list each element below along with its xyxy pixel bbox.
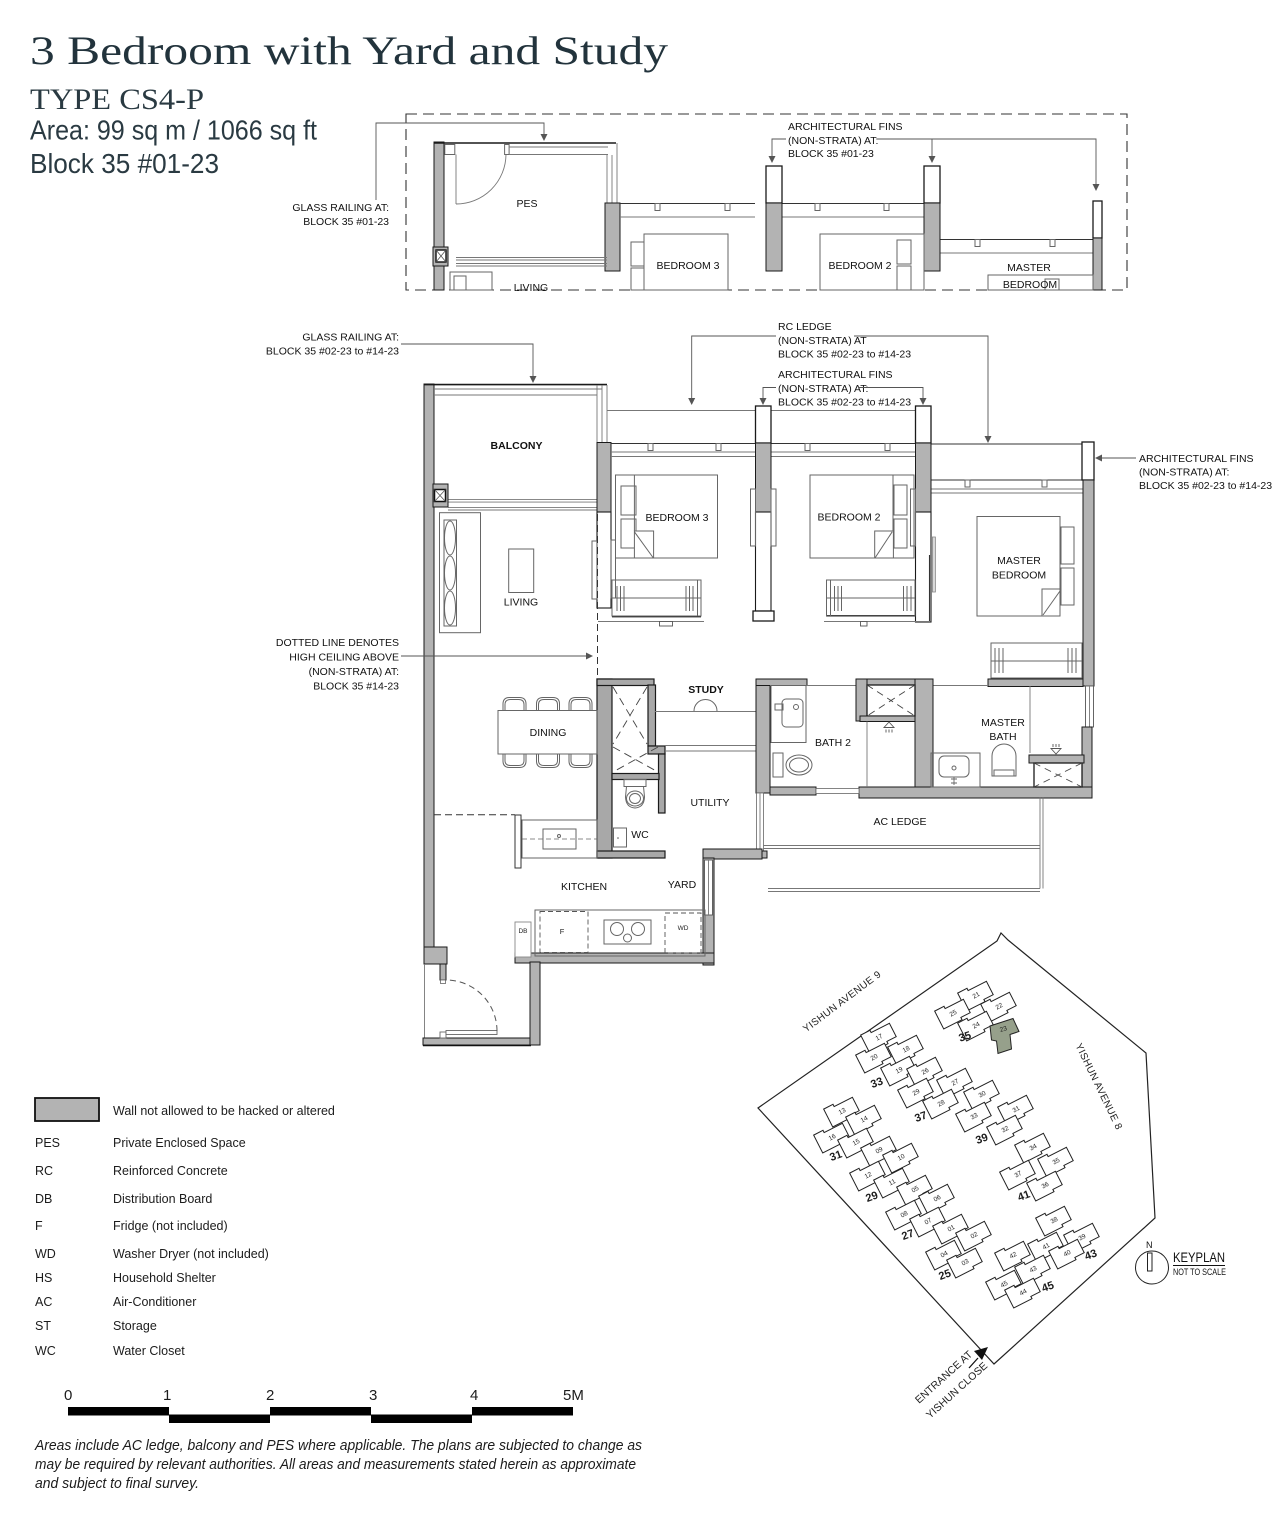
svg-text:BEDROOM 3: BEDROOM 3: [656, 260, 719, 272]
svg-text:DOTTED LINE DENOTES: DOTTED LINE DENOTES: [276, 637, 399, 649]
svg-text:Household Shelter: Household Shelter: [113, 1271, 216, 1285]
svg-text:DB: DB: [518, 928, 527, 935]
svg-text:STUDY: STUDY: [688, 684, 724, 696]
svg-text:Block 35 #01-23: Block 35 #01-23: [30, 148, 219, 179]
svg-text:UTILITY: UTILITY: [690, 797, 729, 809]
svg-text:NOT TO SCALE: NOT TO SCALE: [1173, 1267, 1226, 1277]
svg-text:WC: WC: [35, 1344, 56, 1358]
svg-text:27: 27: [900, 1227, 916, 1242]
svg-text:AC LEDGE: AC LEDGE: [873, 816, 926, 828]
svg-text:N: N: [1146, 1240, 1153, 1250]
svg-text:RC LEDGE: RC LEDGE: [778, 321, 832, 333]
svg-text:5M: 5M: [563, 1387, 584, 1404]
svg-text:RC: RC: [35, 1164, 53, 1178]
svg-text:WD: WD: [35, 1247, 56, 1261]
svg-text:DINING: DINING: [530, 727, 567, 739]
svg-text:2: 2: [266, 1387, 274, 1404]
svg-text:Water Closet: Water Closet: [113, 1344, 185, 1358]
svg-text:MASTER: MASTER: [1007, 262, 1051, 274]
svg-text:(NON-STRATA) AT:: (NON-STRATA) AT:: [778, 383, 868, 395]
svg-text:WC: WC: [631, 829, 649, 841]
svg-text:HIGH CEILING ABOVE: HIGH CEILING ABOVE: [289, 652, 399, 664]
svg-text:BLOCK 35 #01-23: BLOCK 35 #01-23: [788, 148, 874, 160]
svg-text:45: 45: [1040, 1279, 1056, 1294]
svg-text:PES: PES: [35, 1136, 60, 1150]
svg-text:BEDROOM: BEDROOM: [1003, 279, 1057, 291]
svg-text:3: 3: [369, 1387, 377, 1404]
svg-text:and subject to final survey.: and subject to final survey.: [35, 1476, 199, 1492]
svg-text:ARCHITECTURAL FINS: ARCHITECTURAL FINS: [778, 369, 893, 381]
svg-text:BLOCK 35 #14-23: BLOCK 35 #14-23: [313, 681, 399, 693]
svg-text:1: 1: [163, 1387, 171, 1404]
svg-text:Distribution Board: Distribution Board: [113, 1192, 212, 1206]
svg-text:BLOCK 35 #01-23: BLOCK 35 #01-23: [303, 216, 389, 228]
svg-text:BATH 2: BATH 2: [815, 737, 851, 749]
svg-text:Storage: Storage: [113, 1319, 157, 1333]
svg-text:GLASS RAILING AT:: GLASS RAILING AT:: [302, 332, 399, 344]
svg-text:may be required by relevant au: may be required by relevant authorities.…: [35, 1457, 636, 1473]
svg-text:KEYPLAN: KEYPLAN: [1173, 1250, 1225, 1265]
svg-text:BLOCK 35 #02-23 to #14-23: BLOCK 35 #02-23 to #14-23: [778, 397, 911, 409]
svg-text:YISHUN AVENUE 8: YISHUN AVENUE 8: [1073, 1042, 1124, 1132]
svg-text:31: 31: [828, 1148, 844, 1163]
svg-text:BALCONY: BALCONY: [491, 440, 543, 452]
svg-text:MASTER: MASTER: [997, 555, 1041, 567]
svg-text:BLOCK 35 #02-23 to #14-23: BLOCK 35 #02-23 to #14-23: [778, 349, 911, 361]
svg-text:BEDROOM 2: BEDROOM 2: [817, 512, 880, 524]
svg-text:GLASS RAILING AT:: GLASS RAILING AT:: [292, 202, 389, 214]
svg-text:(NON-STRATA) AT:: (NON-STRATA) AT:: [309, 666, 399, 678]
svg-text:Private Enclosed Space: Private Enclosed Space: [113, 1136, 246, 1150]
svg-text:YARD: YARD: [668, 879, 697, 891]
svg-text:ARCHITECTURAL FINS: ARCHITECTURAL FINS: [788, 121, 903, 133]
svg-text:Areas include AC ledge, balcon: Areas include AC ledge, balcony and PES …: [34, 1438, 642, 1454]
svg-text:43: 43: [1083, 1247, 1099, 1262]
svg-text:YISHUN AVENUE 9: YISHUN AVENUE 9: [801, 969, 883, 1035]
svg-text:Washer Dryer (not included): Washer Dryer (not included): [113, 1247, 269, 1261]
svg-text:37: 37: [913, 1109, 929, 1124]
svg-text:25: 25: [937, 1267, 953, 1282]
svg-text:BEDROOM: BEDROOM: [992, 570, 1046, 582]
svg-text:Wall not allowed to be hacked: Wall not allowed to be hacked or altered: [113, 1104, 335, 1118]
svg-text:BLOCK 35 #02-23 to #14-23: BLOCK 35 #02-23 to #14-23: [266, 346, 399, 358]
svg-text:BATH: BATH: [989, 731, 1016, 743]
svg-text:(NON-STRATA) AT:: (NON-STRATA) AT:: [1139, 467, 1229, 479]
svg-text:4: 4: [470, 1387, 478, 1404]
svg-text:0: 0: [64, 1387, 72, 1404]
svg-text:KITCHEN: KITCHEN: [561, 881, 607, 893]
svg-text:LIVING: LIVING: [514, 282, 548, 294]
svg-text:WD: WD: [678, 925, 689, 932]
svg-text:ST: ST: [35, 1319, 51, 1333]
svg-text:3 Bedroom with Yard and Study: 3 Bedroom with Yard and Study: [30, 28, 668, 73]
svg-text:F: F: [560, 927, 565, 936]
svg-text:29: 29: [864, 1189, 880, 1204]
svg-text:Air-Conditioner: Air-Conditioner: [113, 1295, 196, 1309]
svg-text:AC: AC: [35, 1295, 52, 1309]
svg-text:MASTER: MASTER: [981, 717, 1025, 729]
svg-text:39: 39: [974, 1131, 990, 1146]
svg-text:ARCHITECTURAL FINS: ARCHITECTURAL FINS: [1139, 453, 1254, 465]
svg-text:BEDROOM 3: BEDROOM 3: [645, 512, 708, 524]
svg-text:33: 33: [869, 1075, 885, 1090]
svg-text:41: 41: [1016, 1188, 1032, 1203]
svg-text:(NON-STRATA) AT: (NON-STRATA) AT: [778, 335, 867, 347]
svg-text:BEDROOM 2: BEDROOM 2: [828, 260, 891, 272]
svg-text:HS: HS: [35, 1271, 52, 1285]
svg-text:F: F: [35, 1219, 43, 1233]
svg-text:BLOCK 35 #02-23 to #14-23: BLOCK 35 #02-23 to #14-23: [1139, 480, 1272, 492]
svg-text:LIVING: LIVING: [504, 597, 538, 609]
svg-text:PES: PES: [516, 198, 537, 210]
svg-text:(NON-STRATA) AT:: (NON-STRATA) AT:: [788, 135, 878, 147]
svg-text:TYPE CS4-P: TYPE CS4-P: [30, 83, 204, 116]
svg-text:DB: DB: [35, 1192, 52, 1206]
svg-text:Reinforced Concrete: Reinforced Concrete: [113, 1164, 228, 1178]
svg-text:Area: 99 sq m / 1066 sq ft: Area: 99 sq m / 1066 sq ft: [30, 115, 317, 146]
svg-text:Fridge (not included): Fridge (not included): [113, 1219, 228, 1233]
